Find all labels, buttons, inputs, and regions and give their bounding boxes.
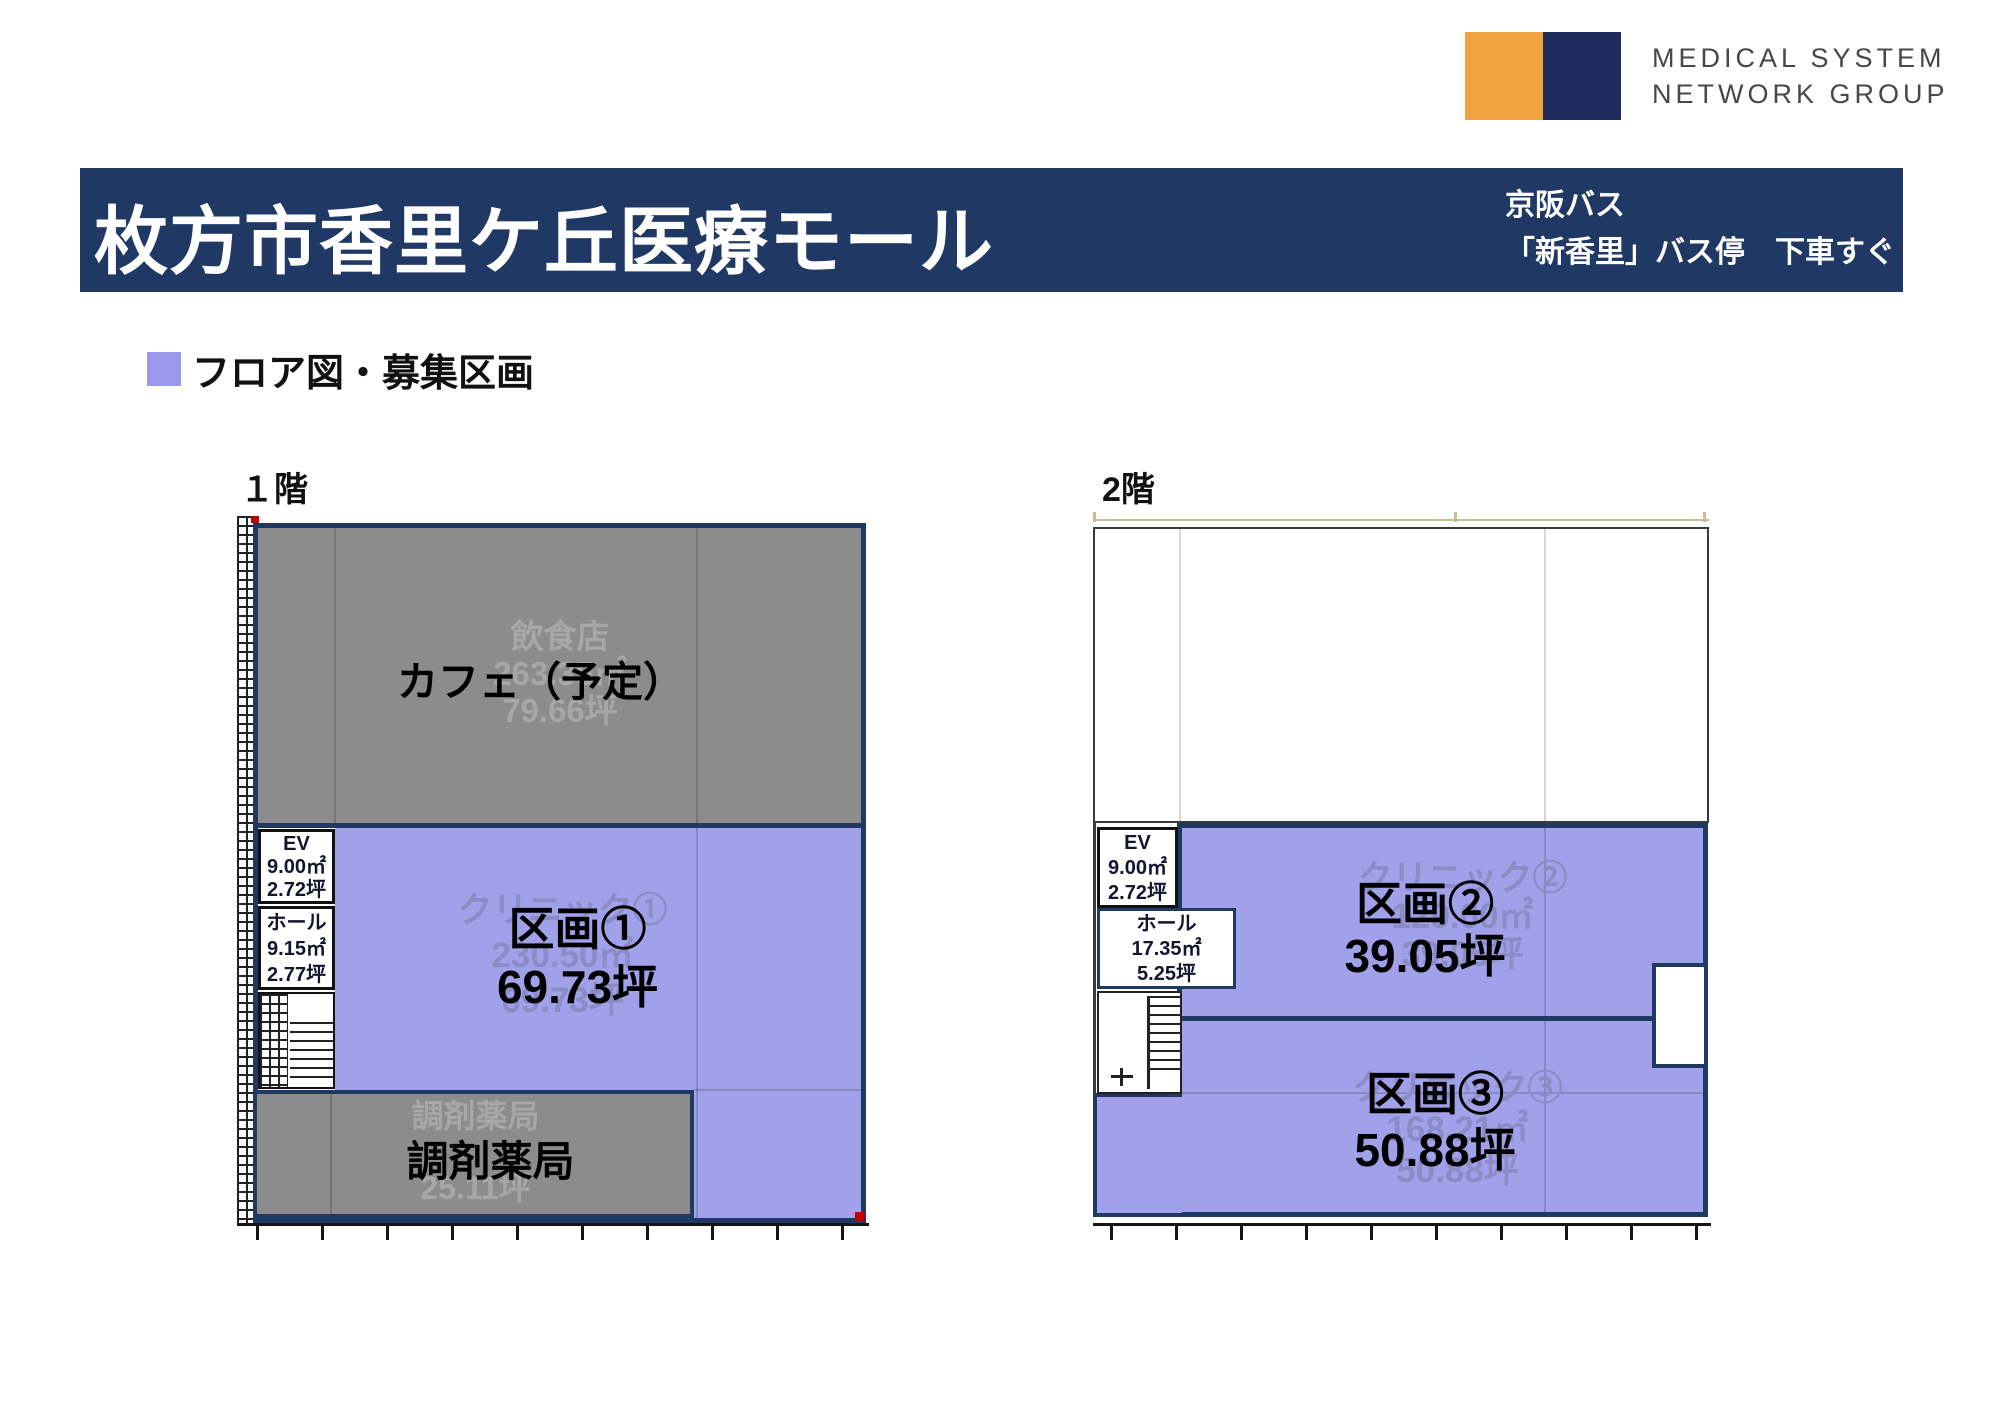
ev-sqm: 9.00㎡	[261, 856, 332, 879]
floor1-ev-box: EV 9.00㎡ 2.72坪	[258, 829, 335, 904]
floor2-hall-box: ホール 17.35㎡ 5.25坪	[1097, 908, 1236, 989]
hall-label: ホール	[1100, 912, 1233, 937]
page-title: 枚方市香里ケ丘医療モール	[94, 182, 994, 289]
floor2-ev-box: EV 9.00㎡ 2.72坪	[1097, 827, 1178, 908]
logo-orange-square	[1465, 32, 1543, 120]
floor2-right-notch	[1652, 963, 1708, 1068]
unit2-tsubo: 39.05坪	[1285, 930, 1565, 982]
floor1-pharmacy-label: 調剤薬局	[378, 1128, 603, 1189]
floor1-unit1-label: 区画① 69.73坪	[430, 900, 725, 1016]
floor1-stairs	[258, 992, 335, 1089]
floor1-exterior-hatch	[237, 516, 253, 1224]
section-bullet	[147, 352, 181, 386]
floor2-roof-area	[1093, 527, 1709, 823]
ev-tsubo: 2.72坪	[261, 879, 332, 902]
floor2-left-wall	[1093, 823, 1096, 1095]
hall-tsubo: 2.77坪	[261, 962, 332, 988]
access-line2: 「新香里」バス停 下車すぐ	[1505, 229, 1895, 276]
floor1-unit1-area-lower	[694, 1090, 861, 1218]
red-marker-bottom-right	[855, 1212, 865, 1222]
unit3-tsubo: 50.88坪	[1285, 1122, 1585, 1178]
floor2-unit3-label: 区画③ 50.88坪	[1285, 1066, 1585, 1178]
floor1-gridline-v4	[330, 1094, 332, 1214]
hall-tsubo: 5.25坪	[1100, 962, 1233, 987]
floor2-gridline-v2	[1544, 529, 1546, 821]
floor2-tan-tick3	[1703, 512, 1706, 522]
unit2-name: 区画②	[1285, 878, 1565, 930]
stairs-steps	[290, 1022, 333, 1085]
floor2-gridline-v1	[1179, 529, 1181, 821]
floor1-label: １階	[240, 462, 308, 511]
unit1-name: 区画①	[430, 900, 725, 958]
ev-label: EV	[1100, 831, 1175, 856]
ev-sqm: 9.00㎡	[1100, 856, 1175, 881]
ev-tsubo: 2.72坪	[1100, 881, 1175, 906]
section-heading: フロア図・募集区画	[192, 342, 534, 397]
unit3-name: 区画③	[1285, 1066, 1585, 1122]
floor1-gridline-v2	[696, 528, 698, 823]
floor2-tan-line	[1093, 519, 1709, 521]
unit1-tsubo: 69.73坪	[430, 958, 725, 1016]
floor2-unit3-left-extension	[1093, 1093, 1182, 1217]
floor2-tan-tick1	[1093, 512, 1096, 522]
floor2-stairs	[1097, 991, 1182, 1094]
floor1-dimension-ticks	[256, 1224, 856, 1240]
access-info: 京阪バス 「新香里」バス停 下車すぐ	[1505, 182, 1895, 276]
title-bar: 枚方市香里ケ丘医療モール 京阪バス 「新香里」バス停 下車すぐ	[80, 168, 1903, 292]
stairs-hatch	[260, 994, 288, 1087]
floor2-label: 2階	[1102, 462, 1155, 511]
hall-sqm: 17.35㎡	[1100, 937, 1233, 962]
logo-navy-square	[1543, 32, 1621, 120]
logo-wordmark: MEDICAL SYSTEM NETWORK GROUP	[1652, 40, 1949, 112]
access-line1: 京阪バス	[1505, 182, 1895, 229]
logo-line2: NETWORK GROUP	[1652, 76, 1949, 112]
floor1-gridline-v3	[696, 828, 698, 1218]
floor2-tan-tick2	[1454, 512, 1457, 522]
slide: MEDICAL SYSTEM NETWORK GROUP 枚方市香里ケ丘医療モー…	[0, 0, 2000, 1414]
ev-label: EV	[261, 833, 332, 856]
floor2-unit-divider	[1181, 1016, 1653, 1021]
floor1-gridline-h1	[694, 1089, 861, 1091]
floor1-gridline-v1	[334, 528, 336, 823]
floor2-unit2-label: 区画② 39.05坪	[1285, 878, 1565, 982]
red-marker-top-left	[251, 516, 259, 523]
floor1-cafe-label: カフェ（予定）	[393, 648, 688, 708]
stairs-steps	[1150, 996, 1180, 1076]
floor1-hall-box: ホール 9.15㎡ 2.77坪	[258, 906, 335, 990]
floor2-dimension-ticks	[1110, 1224, 1710, 1240]
logo-line1: MEDICAL SYSTEM	[1652, 40, 1949, 76]
stairs-arrow-stem	[1120, 1068, 1123, 1086]
hall-sqm: 9.15㎡	[261, 936, 332, 962]
hall-label: ホール	[261, 910, 332, 936]
